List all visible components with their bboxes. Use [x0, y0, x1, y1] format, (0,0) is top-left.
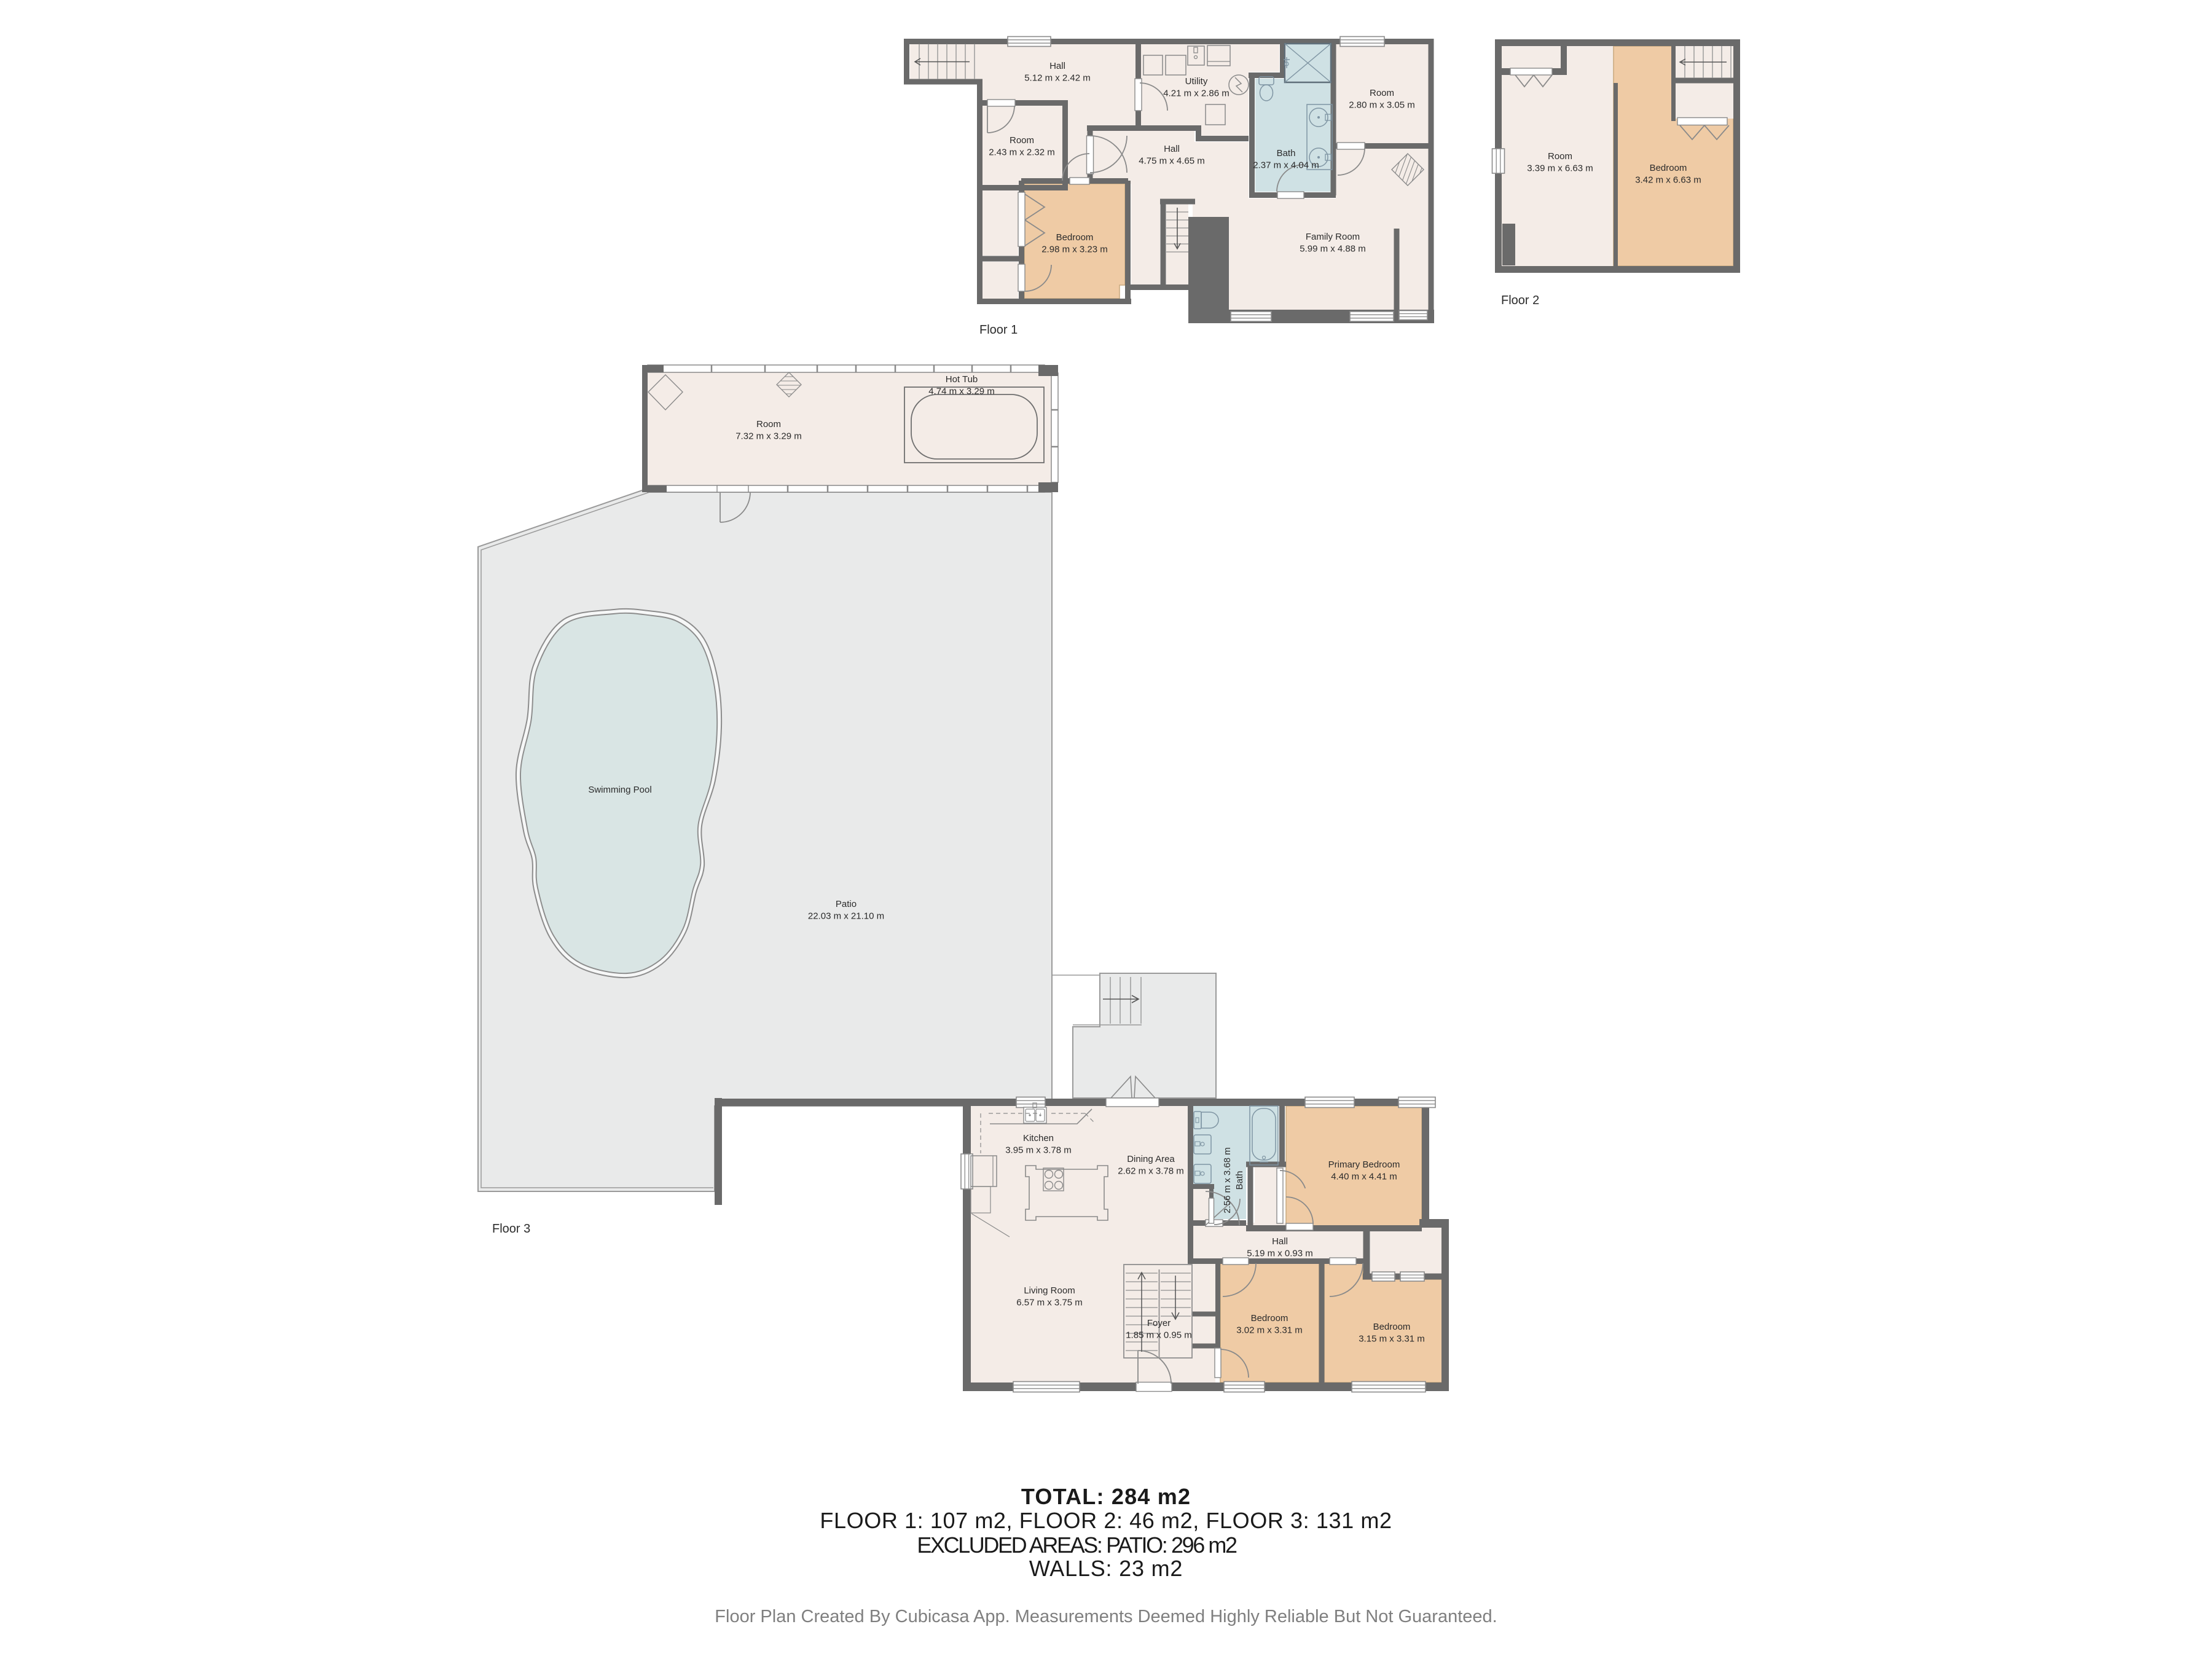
- svg-text:Hall: Hall: [1164, 144, 1180, 154]
- svg-text:7.32 m x 3.29 m: 7.32 m x 3.29 m: [735, 431, 802, 442]
- svg-text:6.57 m x 3.75 m: 6.57 m x 3.75 m: [1016, 1298, 1083, 1308]
- svg-text:Bath: Bath: [1234, 1171, 1245, 1190]
- svg-text:Room: Room: [1010, 135, 1034, 146]
- svg-text:Hot Tub: Hot Tub: [946, 374, 978, 385]
- svg-text:Floor 1: Floor 1: [979, 323, 1018, 337]
- svg-text:Primary Bedroom: Primary Bedroom: [1328, 1159, 1400, 1170]
- svg-text:2.80 m x 3.05 m: 2.80 m x 3.05 m: [1349, 100, 1415, 111]
- svg-text:1.85 m x 0.95 m: 1.85 m x 0.95 m: [1126, 1330, 1192, 1341]
- svg-text:3.02 m x 3.31 m: 3.02 m x 3.31 m: [1236, 1325, 1303, 1336]
- svg-text:Swimming Pool: Swimming Pool: [588, 785, 651, 795]
- svg-text:Patio: Patio: [836, 899, 857, 909]
- svg-text:4.40 m x 4.41 m: 4.40 m x 4.41 m: [1331, 1172, 1397, 1182]
- svg-text:4.21 m x 2.86 m: 4.21 m x 2.86 m: [1163, 88, 1230, 99]
- svg-text:Bedroom: Bedroom: [1373, 1322, 1411, 1332]
- svg-text:TOTAL: 284 m2: TOTAL: 284 m2: [1021, 1484, 1191, 1509]
- svg-text:FLOOR 1: 107 m2, FLOOR 2: 46 m: FLOOR 1: 107 m2, FLOOR 2: 46 m2, FLOOR 3…: [820, 1508, 1392, 1533]
- svg-text:5.99 m x 4.88 m: 5.99 m x 4.88 m: [1300, 244, 1366, 254]
- svg-text:Living Room: Living Room: [1024, 1285, 1075, 1296]
- svg-text:Room: Room: [756, 419, 781, 429]
- svg-text:Floor 3: Floor 3: [492, 1222, 530, 1236]
- svg-text:2.62 m x 3.78 m: 2.62 m x 3.78 m: [1118, 1166, 1184, 1177]
- svg-text:Hall: Hall: [1049, 61, 1065, 71]
- svg-text:Bedroom: Bedroom: [1251, 1313, 1288, 1324]
- svg-text:4.74 m x 3.29 m: 4.74 m x 3.29 m: [928, 386, 995, 397]
- svg-text:3.42 m x 6.63 m: 3.42 m x 6.63 m: [1635, 175, 1701, 186]
- svg-text:3.39 m x 6.63 m: 3.39 m x 6.63 m: [1527, 163, 1593, 174]
- svg-text:2.56 m x 3.68 m: 2.56 m x 3.68 m: [1222, 1147, 1233, 1214]
- svg-text:2.43 m x 2.32 m: 2.43 m x 2.32 m: [989, 147, 1055, 158]
- svg-text:5.12 m x 2.42 m: 5.12 m x 2.42 m: [1024, 73, 1091, 84]
- svg-text:3.15 m x 3.31 m: 3.15 m x 3.31 m: [1359, 1334, 1425, 1344]
- svg-text:Bedroom: Bedroom: [1650, 163, 1687, 173]
- svg-text:Family Room: Family Room: [1306, 232, 1360, 242]
- svg-text:Bath: Bath: [1277, 148, 1296, 159]
- svg-text:WALLS: 23 m2: WALLS: 23 m2: [1029, 1556, 1183, 1581]
- svg-text:EXCLUDED AREAS: PATIO: 296 m2: EXCLUDED AREAS: PATIO: 296 m2: [917, 1532, 1237, 1558]
- svg-text:Floor Plan Created By Cubicasa: Floor Plan Created By Cubicasa App. Meas…: [715, 1607, 1497, 1626]
- svg-text:Utility: Utility: [1185, 76, 1208, 87]
- svg-text:Foyer: Foyer: [1147, 1318, 1171, 1328]
- svg-text:Kitchen: Kitchen: [1023, 1133, 1054, 1143]
- svg-text:5.19 m x 0.93 m: 5.19 m x 0.93 m: [1247, 1249, 1313, 1259]
- svg-text:Hall: Hall: [1272, 1236, 1288, 1247]
- svg-text:4.75 m x 4.65 m: 4.75 m x 4.65 m: [1139, 156, 1205, 167]
- svg-text:3.95 m x 3.78 m: 3.95 m x 3.78 m: [1005, 1145, 1072, 1156]
- svg-text:Room: Room: [1548, 151, 1572, 162]
- svg-text:22.03 m x 21.10 m: 22.03 m x 21.10 m: [808, 911, 884, 922]
- svg-text:Floor 2: Floor 2: [1501, 294, 1539, 307]
- svg-text:2.37 m x 4.04 m: 2.37 m x 4.04 m: [1253, 160, 1319, 171]
- svg-text:Bedroom: Bedroom: [1056, 232, 1094, 243]
- svg-text:2.98 m x 3.23 m: 2.98 m x 3.23 m: [1041, 245, 1108, 255]
- svg-text:Room: Room: [1370, 88, 1394, 98]
- svg-text:Dining Area: Dining Area: [1127, 1154, 1175, 1164]
